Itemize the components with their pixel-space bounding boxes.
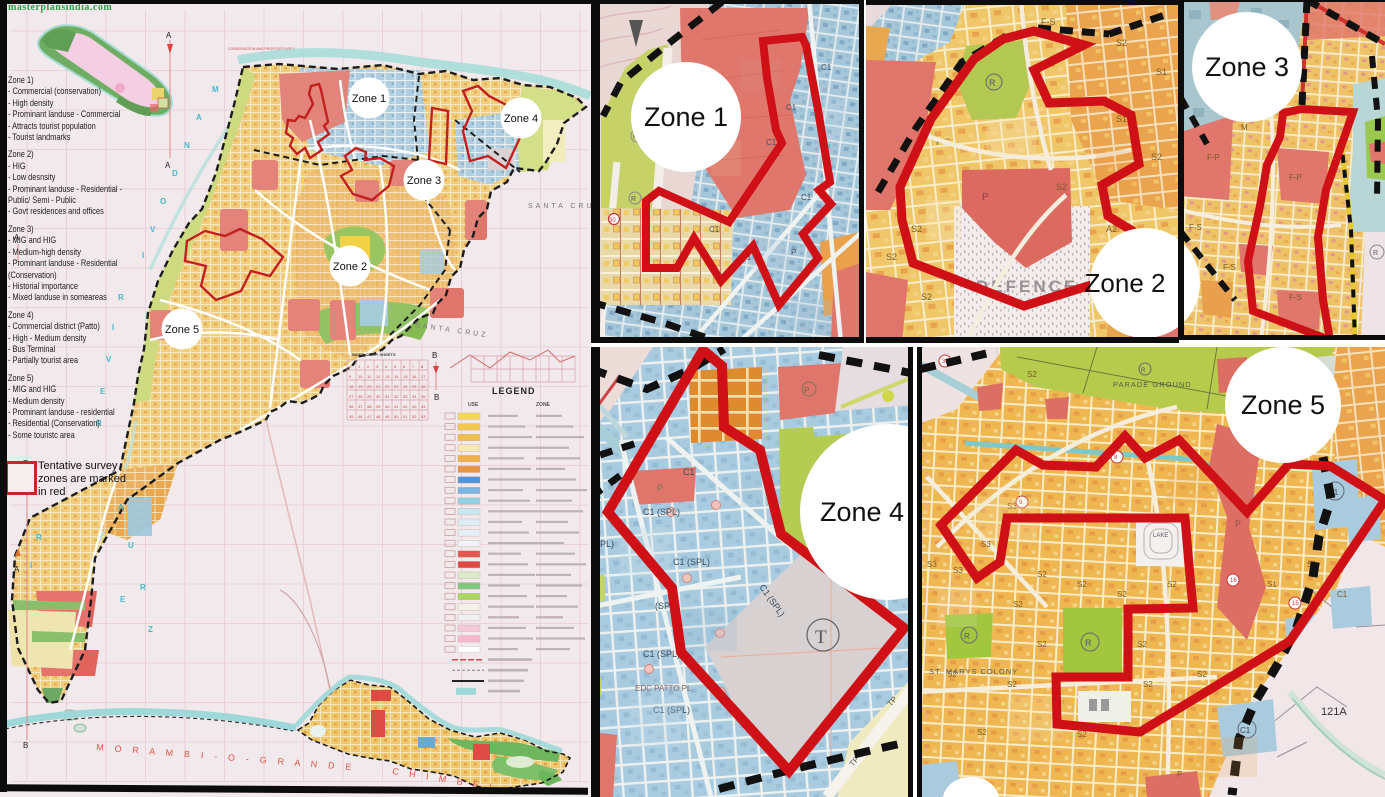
svg-text:17: 17 — [421, 374, 426, 379]
svg-text:S2: S2 — [1037, 570, 1047, 579]
svg-text:S2: S2 — [1137, 640, 1147, 649]
svg-text:USE: USE — [468, 402, 479, 408]
svg-text:A: A — [14, 565, 20, 574]
svg-text:EDC PATTO PL: EDC PATTO PL — [635, 684, 692, 693]
svg-text:C1: C1 — [1337, 590, 1348, 599]
svg-text:Zone 2: Zone 2 — [333, 261, 367, 273]
svg-text:44: 44 — [421, 404, 426, 409]
svg-text:45: 45 — [349, 414, 354, 419]
svg-text:52: 52 — [412, 414, 417, 419]
svg-text:A: A — [196, 113, 202, 122]
svg-text:11: 11 — [367, 374, 372, 379]
svg-text:31: 31 — [385, 394, 390, 399]
svg-text:16: 16 — [1230, 578, 1237, 584]
svg-text:Zone 4: Zone 4 — [504, 113, 538, 125]
svg-text:R: R — [1141, 368, 1146, 374]
svg-text:F-P: F-P — [1289, 173, 1302, 182]
svg-text:S2: S2 — [1077, 580, 1087, 589]
svg-text:F-S: F-S — [1189, 223, 1202, 232]
svg-text:48: 48 — [376, 414, 381, 419]
svg-text:S2: S2 — [1167, 580, 1177, 589]
svg-text:15: 15 — [1292, 601, 1299, 607]
svg-text:27: 27 — [349, 394, 354, 399]
svg-text:1: 1 — [358, 364, 361, 369]
svg-text:B: B — [434, 393, 439, 402]
svg-text:37: 37 — [358, 404, 363, 409]
svg-text:P: P — [1235, 519, 1241, 529]
svg-text:2: 2 — [367, 364, 370, 369]
svg-text:S3: S3 — [981, 540, 991, 549]
svg-text:I: I — [30, 561, 32, 570]
svg-text:S1: S1 — [1156, 67, 1167, 77]
svg-text:Zone 5: Zone 5 — [165, 324, 199, 336]
svg-text:R: R — [1085, 638, 1092, 648]
svg-text:8: 8 — [421, 364, 424, 369]
svg-text:9: 9 — [349, 374, 352, 379]
svg-text:7: 7 — [412, 364, 415, 369]
svg-text:ZONE: ZONE — [536, 402, 551, 408]
svg-text:12: 12 — [376, 374, 381, 379]
svg-text:B: B — [432, 351, 437, 360]
svg-text:N: N — [184, 141, 190, 150]
svg-text:24: 24 — [403, 384, 408, 389]
svg-text:E: E — [120, 595, 126, 604]
svg-text:I: I — [142, 251, 144, 260]
svg-text:14: 14 — [394, 374, 399, 379]
svg-text:Zone 1: Zone 1 — [352, 93, 386, 105]
svg-text:R: R — [140, 583, 146, 592]
svg-text:C1: C1 — [709, 225, 720, 234]
svg-text:M: M — [1241, 123, 1248, 132]
svg-text:49: 49 — [385, 414, 390, 419]
svg-text:Zone 5: Zone 5 — [1241, 390, 1325, 420]
svg-text:S2: S2 — [1027, 370, 1037, 379]
svg-text:S2: S2 — [1077, 730, 1087, 739]
svg-text:R: R — [964, 632, 970, 641]
svg-text:20: 20 — [367, 384, 372, 389]
svg-text:S2: S2 — [1197, 670, 1207, 679]
svg-text:13: 13 — [385, 374, 390, 379]
svg-text:6: 6 — [403, 364, 406, 369]
svg-text:30: 30 — [376, 394, 381, 399]
svg-text:INDEX OF P.P. SHEETS: INDEX OF P.P. SHEETS — [352, 352, 396, 357]
svg-text:18: 18 — [349, 384, 354, 389]
svg-text:Zone 2: Zone 2 — [1085, 268, 1166, 298]
svg-text:47: 47 — [367, 414, 372, 419]
svg-text:40: 40 — [385, 404, 390, 409]
svg-text:3: 3 — [376, 364, 379, 369]
svg-text:19: 19 — [358, 384, 363, 389]
svg-text:Zone 3: Zone 3 — [1205, 52, 1289, 82]
svg-text:46: 46 — [358, 414, 363, 419]
svg-text:A: A — [166, 31, 172, 40]
svg-text:R: R — [989, 78, 996, 88]
svg-text:4: 4 — [385, 364, 388, 369]
svg-text:30: 30 — [609, 218, 616, 224]
svg-text:10: 10 — [358, 374, 363, 379]
svg-text:F-S: F-S — [1223, 263, 1236, 272]
svg-text:21: 21 — [376, 384, 381, 389]
svg-text:121A: 121A — [1321, 706, 1347, 718]
svg-text:B: B — [23, 741, 28, 750]
svg-text:V: V — [150, 225, 156, 234]
svg-text:C1: C1 — [821, 63, 832, 72]
svg-text:SANTA CRUZ: SANTA CRUZ — [528, 203, 591, 210]
svg-text:P: P — [982, 192, 989, 203]
svg-text:S3: S3 — [953, 566, 963, 575]
svg-text:P: P — [1177, 770, 1182, 779]
svg-text:5: 5 — [394, 364, 397, 369]
svg-text:25: 25 — [412, 384, 417, 389]
svg-text:S2: S2 — [977, 728, 987, 737]
svg-text:A: A — [118, 503, 124, 512]
svg-text:D: D — [172, 169, 178, 178]
svg-text:S1: S1 — [1267, 580, 1277, 589]
svg-text:C1: C1 — [786, 103, 797, 112]
svg-text:LAKE: LAKE — [1153, 533, 1168, 539]
svg-text:22: 22 — [385, 384, 390, 389]
svg-text:F-S: F-S — [1289, 293, 1302, 302]
svg-text:29: 29 — [367, 394, 372, 399]
svg-text:R: R — [36, 533, 42, 542]
svg-text:S2: S2 — [1143, 680, 1153, 689]
svg-text:S2: S2 — [886, 252, 897, 262]
svg-text:S2: S2 — [1013, 600, 1023, 609]
svg-text:O: O — [160, 197, 166, 206]
svg-text:43: 43 — [412, 404, 417, 409]
svg-text:Zone 4: Zone 4 — [820, 497, 904, 527]
svg-text:35: 35 — [421, 394, 426, 399]
svg-text:C1: C1 — [801, 193, 812, 202]
svg-text:A: A — [165, 161, 171, 170]
svg-text:Z: Z — [148, 625, 153, 634]
svg-text:34: 34 — [412, 394, 417, 399]
svg-text:R: R — [631, 196, 636, 203]
svg-text:S2: S2 — [1037, 640, 1047, 649]
svg-text:15: 15 — [403, 374, 408, 379]
svg-text:C1 (SPL): C1 (SPL) — [643, 649, 680, 659]
svg-text:S2: S2 — [921, 292, 932, 302]
svg-text:Zone 1: Zone 1 — [644, 102, 728, 132]
svg-text:16: 16 — [412, 374, 417, 379]
svg-text:33: 33 — [403, 394, 408, 399]
svg-text:Zone 3: Zone 3 — [407, 175, 441, 187]
svg-text:S2: S2 — [1007, 680, 1017, 689]
svg-text:28: 28 — [358, 394, 363, 399]
svg-text:50: 50 — [394, 414, 399, 419]
svg-text:S2: S2 — [1117, 590, 1127, 599]
svg-text:M O R A M B I - O - G R A N D: M O R A M B I - O - G R A N D E — [96, 742, 356, 772]
svg-text:53: 53 — [421, 414, 426, 419]
svg-text:P: P — [804, 386, 809, 395]
svg-text:S2: S2 — [911, 224, 922, 234]
svg-text:LEGEND: LEGEND — [492, 386, 536, 396]
svg-text:C1: C1 — [683, 467, 695, 477]
svg-text:P: P — [791, 248, 796, 257]
svg-text:T: T — [815, 627, 827, 648]
svg-text:PARADE GROUND: PARADE GROUND — [1113, 380, 1192, 389]
svg-text:38: 38 — [367, 404, 372, 409]
svg-text:F-P: F-P — [1207, 153, 1220, 162]
svg-text:42: 42 — [403, 404, 408, 409]
svg-text:SANTA CRUZ: SANTA CRUZ — [415, 322, 489, 339]
svg-text:23: 23 — [394, 384, 399, 389]
svg-text:S2: S2 — [1056, 182, 1067, 192]
svg-text:41: 41 — [394, 404, 399, 409]
svg-text:32: 32 — [394, 394, 399, 399]
svg-text:P: P — [657, 483, 663, 493]
svg-text:R: R — [1373, 250, 1378, 257]
svg-text:C1: C1 — [1240, 726, 1251, 735]
svg-text:C1 (SPL): C1 (SPL) — [673, 557, 710, 567]
svg-text:U: U — [128, 541, 134, 550]
svg-text:M: M — [212, 85, 219, 94]
svg-text:C1 (SPL): C1 (SPL) — [643, 507, 680, 517]
svg-text:36: 36 — [349, 404, 354, 409]
svg-text:S2: S2 — [1151, 152, 1162, 162]
svg-text:26: 26 — [421, 384, 426, 389]
svg-text:39: 39 — [376, 404, 381, 409]
svg-text:ST. MARYS COLONY: ST. MARYS COLONY — [929, 667, 1018, 676]
svg-text:S3: S3 — [927, 560, 937, 569]
svg-text:51: 51 — [403, 414, 408, 419]
svg-text:C1: C1 — [766, 138, 777, 147]
svg-text:S2: S2 — [1116, 38, 1127, 48]
